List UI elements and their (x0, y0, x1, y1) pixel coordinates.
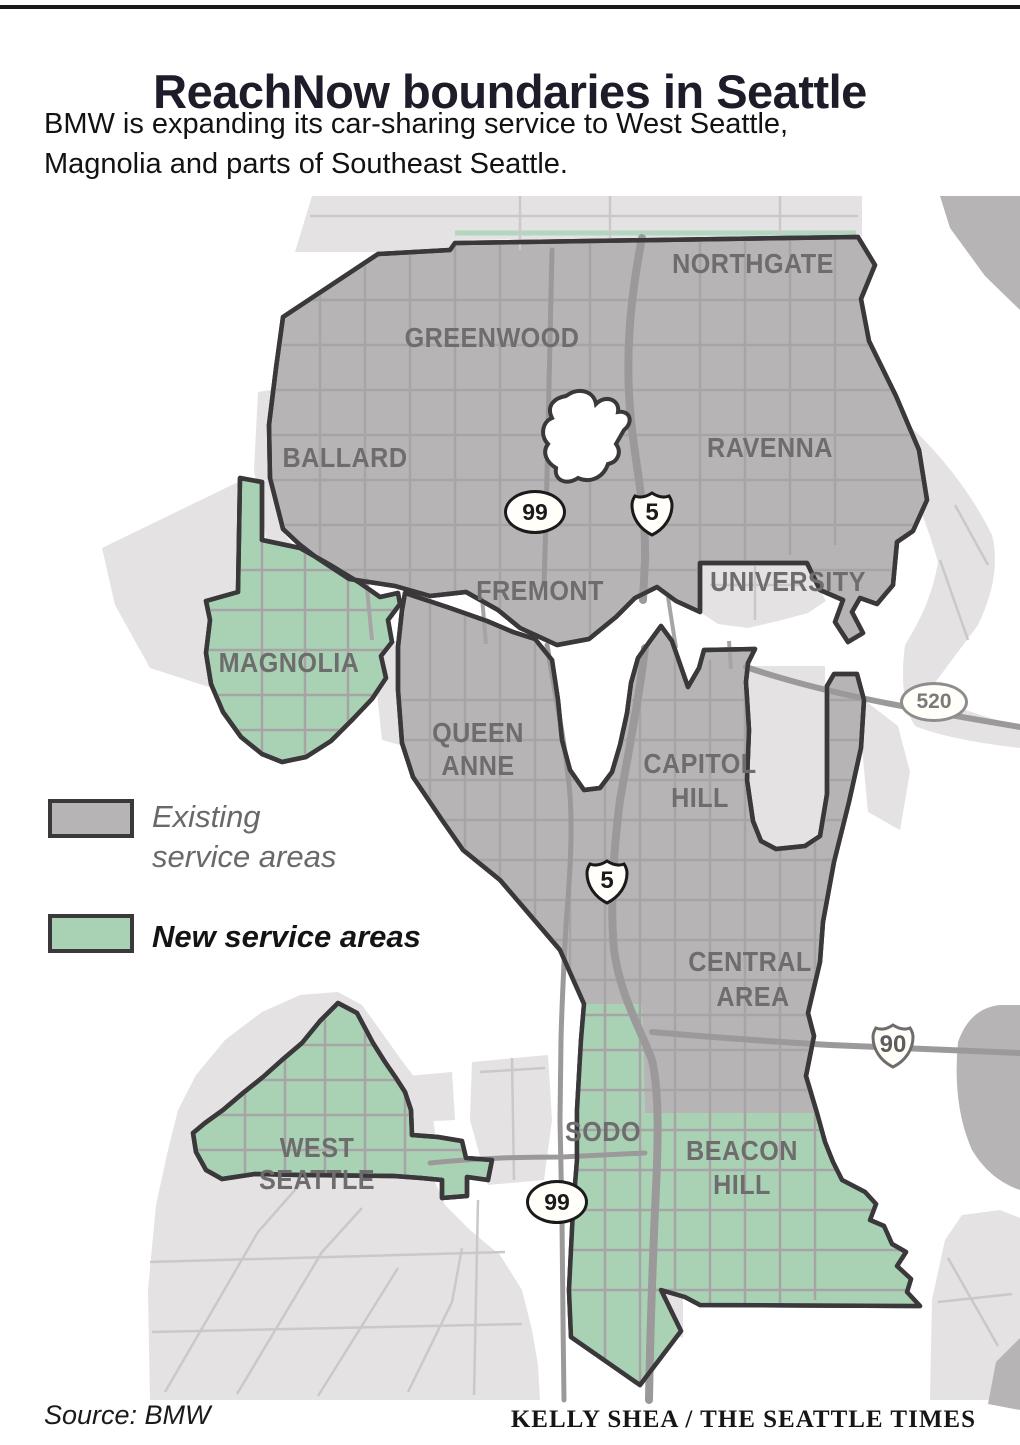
infographic-page: ReachNow boundaries in Seattle BMW is ex… (0, 0, 1020, 1445)
i90-number: 90 (870, 1031, 916, 1059)
us99-north-shield: 99 (504, 490, 566, 534)
sr520-shield: 520 (900, 682, 968, 722)
map-label-ravenna: RAVENNA (707, 432, 833, 464)
map-label-university: UNIVERSITY (710, 566, 866, 598)
land-madison-shore (862, 700, 910, 830)
map-label-northgate: NORTHGATE (672, 248, 834, 280)
map-label-beacon-hill-1: BEACON (686, 1135, 798, 1167)
map-label-ballard: BALLARD (283, 442, 408, 474)
map-label-central-area-1: CENTRAL (688, 946, 812, 978)
legend-existing-swatch (48, 799, 134, 838)
farshore-bellevue (957, 1005, 1020, 1190)
i5-downtown-shield: 5 (584, 858, 630, 906)
i90-shield: 90 (870, 1022, 916, 1070)
map-label-greenwood: GREENWOOD (405, 322, 580, 354)
sr520-number: 520 (916, 690, 951, 714)
land-duwamish-piers (408, 1072, 455, 1122)
us99-south-shield: 99 (526, 1180, 588, 1224)
map-label-magnolia: MAGNOLIA (219, 647, 360, 679)
map-label-central-area-2: AREA (716, 981, 789, 1013)
map-label-west-seattle-1: WEST (280, 1132, 355, 1164)
farshore-top-right (940, 196, 1020, 310)
i5-downtown-number: 5 (584, 867, 630, 895)
map-label-capitol-hill-1: CAPITOL (643, 748, 756, 780)
legend-existing-label: Existing service areas (152, 797, 336, 877)
legend-new-swatch (48, 914, 134, 953)
us99-north-number: 99 (522, 499, 548, 526)
map-label-capitol-hill-2: HILL (671, 782, 729, 814)
source-credit: Source: BMW (44, 1400, 211, 1431)
map-label-queen-anne-2: ANNE (441, 750, 514, 782)
land-arboretum (749, 666, 825, 847)
us99-south-number: 99 (544, 1189, 570, 1216)
map-label-queen-anne-1: QUEEN (432, 717, 524, 749)
map-label-sodo: SODO (565, 1116, 641, 1148)
legend-existing-line1: Existing (152, 797, 336, 837)
legend-new-label: New service areas (152, 919, 421, 955)
legend-existing-line2: service areas (152, 837, 336, 877)
byline-credit: KELLY SHEA / THE SEATTLE TIMES (511, 1406, 976, 1434)
i5-north-shield: 5 (629, 490, 675, 538)
map-label-fremont: FREMONT (476, 575, 604, 607)
map-label-beacon-hill-2: HILL (713, 1169, 771, 1201)
i5-north-number: 5 (629, 499, 675, 527)
map-label-west-seattle-2: SEATTLE (259, 1164, 375, 1196)
